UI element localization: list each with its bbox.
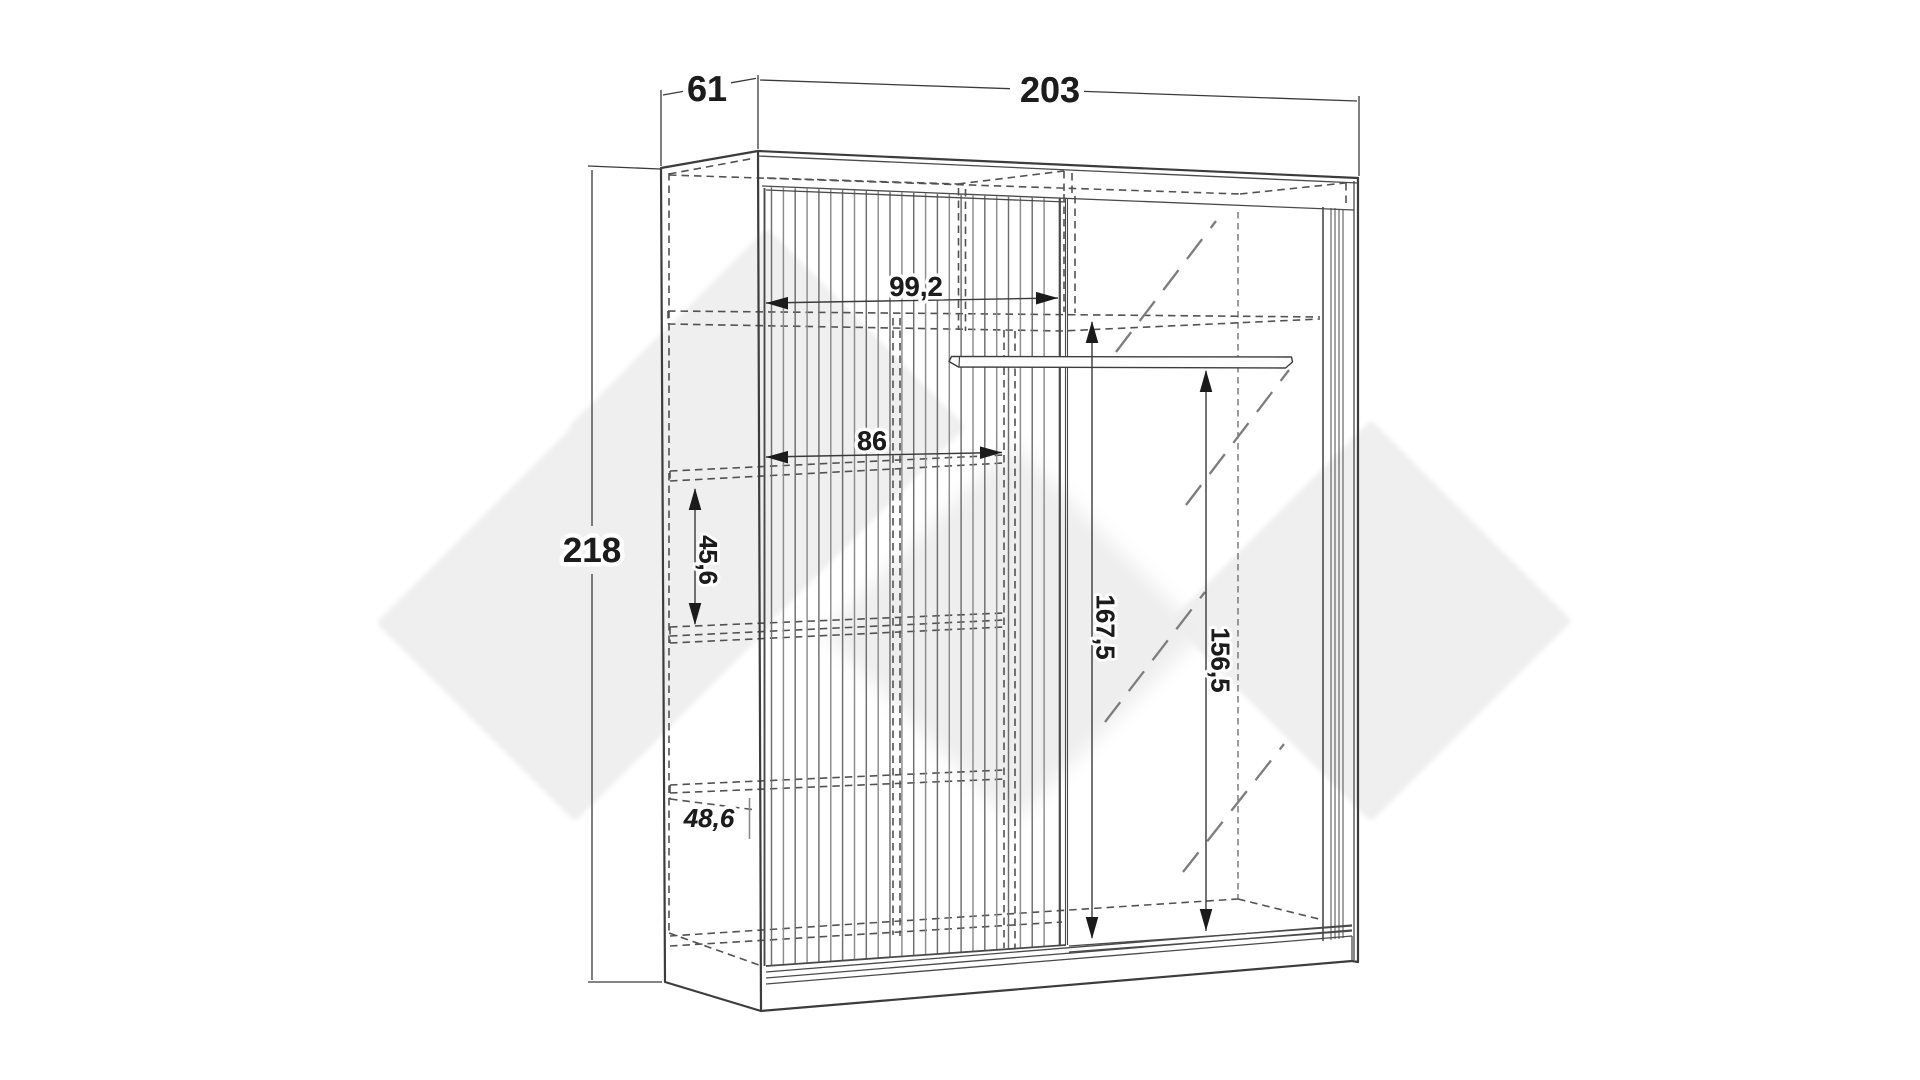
svg-text:45,6: 45,6	[694, 535, 722, 585]
svg-text:61: 61	[687, 68, 727, 109]
svg-text:99,2: 99,2	[889, 271, 943, 302]
svg-text:156,5: 156,5	[1206, 627, 1236, 692]
svg-text:167,5: 167,5	[1091, 594, 1121, 659]
svg-text:48,6: 48,6	[683, 803, 735, 833]
svg-text:86: 86	[857, 426, 887, 456]
svg-text:203: 203	[1020, 69, 1080, 110]
svg-text:218: 218	[563, 531, 621, 570]
